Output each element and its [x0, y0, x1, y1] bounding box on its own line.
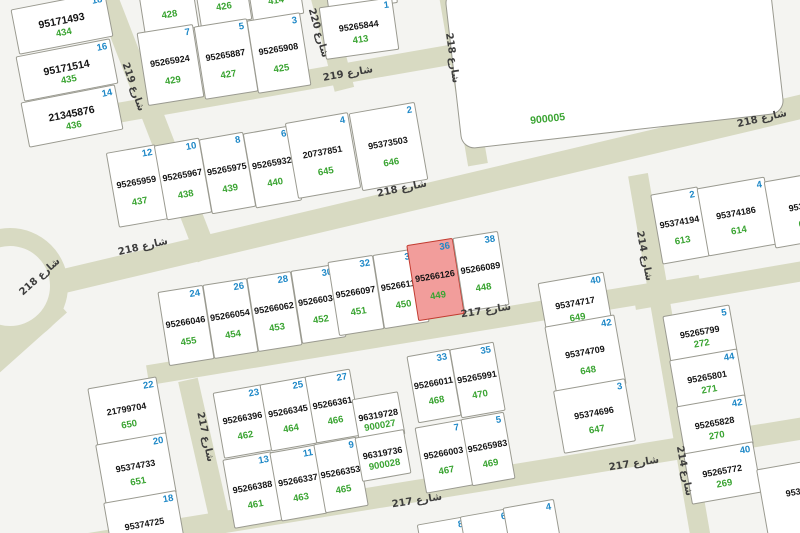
- parcel-id: 95266062: [253, 300, 294, 316]
- parcel-id: 95266003: [423, 445, 464, 462]
- block-number: 448: [475, 281, 492, 294]
- parcel-95265844[interactable]: 195265844413: [319, 0, 400, 60]
- block-number: 270: [708, 429, 726, 443]
- block-number: 466: [327, 414, 345, 428]
- block-number: 454: [224, 328, 241, 341]
- parcel-id: 95266361: [312, 394, 353, 411]
- block-number: 648: [579, 364, 597, 378]
- block-number: 470: [471, 388, 489, 402]
- plot-number: 7: [184, 27, 191, 39]
- block-number: 449: [429, 289, 446, 302]
- block-number: 900005: [530, 111, 566, 127]
- plot-number: 14: [101, 87, 113, 100]
- block-number: 651: [130, 475, 148, 489]
- parcel-id: 95265828: [694, 415, 735, 432]
- plot-number: 5: [721, 307, 728, 319]
- plot-number: 13: [258, 454, 270, 467]
- block-number: 646: [383, 156, 401, 170]
- parcel-id: 95265983: [467, 437, 508, 454]
- parcel-id: 95266089: [460, 260, 501, 276]
- plot-number: 40: [739, 444, 751, 457]
- parcel-id: 95265908: [258, 41, 299, 57]
- block-number: 434: [55, 26, 73, 40]
- block-number: 455: [180, 335, 197, 348]
- parcel-id: 95266011: [413, 374, 454, 391]
- plot-number: 28: [277, 274, 289, 287]
- parcel-id: 95266345: [267, 402, 308, 419]
- plot-number: 4: [756, 179, 763, 191]
- block-number: 614: [730, 224, 748, 238]
- block-number: 425: [273, 62, 290, 75]
- block-number: 435: [60, 73, 78, 87]
- parcel-95265772[interactable]: 4095265772269: [683, 441, 762, 505]
- parcel-id: 95266353: [320, 463, 361, 480]
- block-number: 439: [222, 182, 240, 196]
- plot-number: 8: [234, 134, 241, 146]
- parcel-id: 953: [785, 486, 800, 498]
- plot-number: 3: [291, 15, 298, 27]
- plot-number: 20: [152, 435, 164, 448]
- block-number: 463: [292, 491, 310, 505]
- plot-number: 23: [248, 387, 260, 400]
- parcel-id: 95265975: [206, 161, 247, 178]
- plot-number: 22: [142, 379, 154, 392]
- block-number: 465: [335, 483, 353, 497]
- block-number: 613: [674, 234, 692, 248]
- plot-number: 35: [480, 344, 492, 357]
- parcel-map: 1895171493434169517151443514213458764364…: [0, 0, 800, 533]
- block-number: 428: [161, 8, 178, 21]
- block-number: 413: [352, 33, 369, 46]
- parcel-id: 95266097: [335, 284, 376, 300]
- block-number: 650: [120, 418, 138, 432]
- parcel-953[interactable]: 953: [756, 456, 800, 533]
- plot-number: 18: [162, 493, 174, 506]
- parcel-id: 95265887: [205, 47, 246, 63]
- parcel-id: 95374709: [564, 344, 605, 361]
- plot-number: 5: [495, 414, 502, 426]
- block-number: 462: [237, 429, 255, 443]
- parcel-id: 95266388: [232, 478, 273, 495]
- parcel-id: 95374696: [573, 405, 614, 422]
- parcel-id: 95266126: [414, 268, 455, 284]
- parcel-id: 95373503: [367, 134, 408, 151]
- parcel-id: 95374186: [715, 205, 756, 222]
- block-number: 437: [131, 195, 149, 209]
- block-number: 453: [268, 321, 285, 334]
- parcel-id: 95374725: [124, 516, 165, 533]
- block-number: 440: [267, 176, 285, 190]
- block-number: 426: [215, 0, 232, 13]
- plot-number: 25: [292, 379, 304, 392]
- block-number: 269: [716, 477, 734, 491]
- block-number: 427: [220, 68, 237, 81]
- plot-number: 42: [731, 397, 743, 410]
- parcel-id: 95265991: [456, 368, 497, 385]
- parcel-id: 95374194: [659, 214, 700, 231]
- parcel-id: 95266054: [209, 307, 250, 323]
- parcel-id: 95265801: [686, 369, 727, 386]
- parcel-id: 95265932: [251, 155, 292, 172]
- block-number: 468: [428, 394, 446, 408]
- block-number: 464: [282, 422, 300, 436]
- plot-number: 42: [600, 317, 612, 330]
- block-number: 429: [164, 74, 181, 87]
- parcel-id: 95265772: [701, 462, 742, 479]
- block-number: 272: [693, 337, 711, 351]
- parcel-id: 95266337: [277, 471, 318, 488]
- plot-number: 27: [336, 371, 348, 384]
- block-number: 451: [350, 305, 367, 318]
- parcel-id: 95265959: [116, 174, 157, 191]
- block-number: 461: [247, 498, 265, 512]
- parcel-id: 95265924: [149, 53, 190, 69]
- block-number: 438: [177, 188, 195, 202]
- parcel-96319736[interactable]: 96319736900028: [354, 429, 411, 482]
- parcel-id: 20737851: [302, 143, 343, 160]
- plot-number: 40: [590, 274, 602, 287]
- parcel-95373503[interactable]: 295373503646: [349, 102, 429, 191]
- parcel-id: 95265967: [162, 167, 203, 184]
- plot-number: 33: [436, 351, 448, 364]
- plot-number: 2: [406, 104, 413, 116]
- plot-number: 4: [339, 115, 346, 127]
- plot-number: 3: [616, 381, 623, 393]
- block-number: 436: [65, 119, 83, 133]
- plot-number: 18: [91, 0, 103, 7]
- plot-number: 44: [723, 351, 735, 364]
- block-number: 469: [482, 457, 500, 471]
- parcel-id: 95266396: [222, 410, 263, 427]
- plot-number: 24: [189, 287, 201, 300]
- parcel-id: 21799704: [106, 401, 147, 418]
- plot-number: 11: [302, 447, 314, 460]
- plot-number: 12: [141, 147, 153, 160]
- plot-number: 16: [96, 41, 108, 54]
- parcel-95374696[interactable]: 395374696647: [553, 378, 636, 454]
- plot-number: 7: [453, 422, 460, 434]
- plot-number: 10: [185, 140, 197, 153]
- plot-number: 2: [689, 189, 696, 201]
- block-number: 452: [312, 313, 329, 326]
- plot-number: 36: [439, 240, 451, 253]
- plot-number: 5: [238, 21, 245, 33]
- parcel-id: 95374717: [554, 294, 595, 311]
- parcel-id: 95266046: [165, 314, 206, 330]
- parcel-id: 953741: [788, 198, 800, 213]
- plot-number: 4: [545, 501, 552, 513]
- parcel-id: 95374733: [115, 458, 156, 475]
- plot-number: 1: [383, 0, 390, 11]
- block-number: 450: [395, 298, 412, 311]
- parcel-4[interactable]: 4: [503, 499, 562, 533]
- block-number: 271: [701, 383, 719, 397]
- plot-number: 26: [233, 281, 245, 294]
- parcel-id: 95265844: [338, 18, 379, 33]
- block-number: 645: [317, 165, 335, 179]
- plot-number: 32: [359, 257, 371, 270]
- block-number: 467: [438, 464, 456, 478]
- block-number: 414: [267, 0, 284, 7]
- parcel-95265908[interactable]: 395265908425: [247, 12, 312, 94]
- plot-number: 9: [348, 439, 355, 451]
- block-number: 647: [588, 423, 606, 437]
- plot-number: 38: [484, 233, 496, 246]
